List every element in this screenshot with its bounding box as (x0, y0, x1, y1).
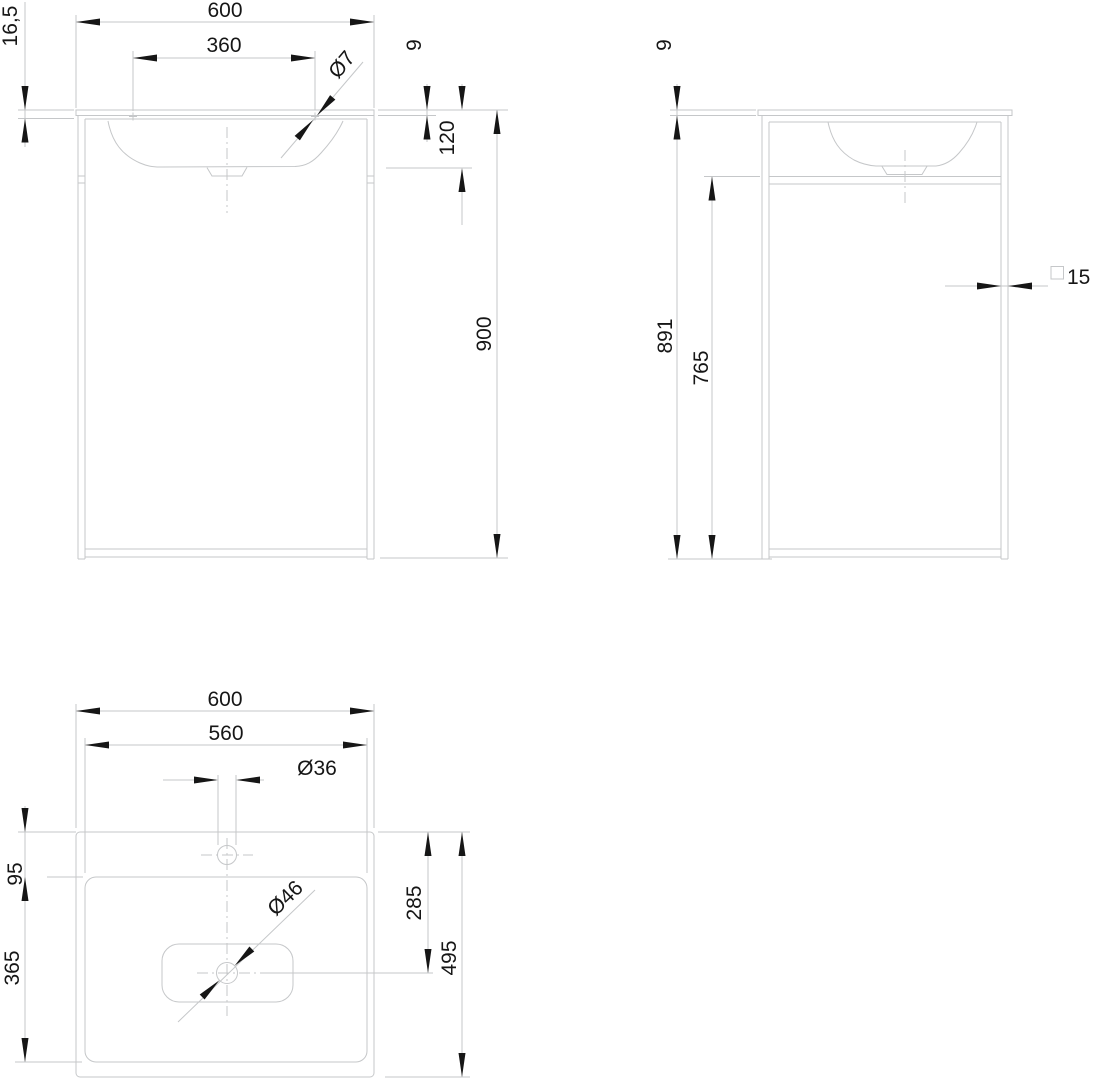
side-countertop (758, 110, 1012, 116)
plan-geometry (76, 832, 374, 1077)
plan-drain-dia-label: Ø46 (263, 876, 308, 920)
plan-cutout-width-label: 560 (208, 722, 243, 745)
front-height-label: 900 (473, 316, 496, 351)
plan-depth-label: 495 (438, 940, 461, 975)
side-legs (762, 116, 1008, 560)
side-basin-bowl (828, 122, 977, 166)
plan-back-offset-label: 95 (4, 862, 27, 885)
front-countertop (76, 110, 374, 116)
plan-dimensions: 600 560 Ø36 95 365 (1, 688, 470, 1077)
front-hole-dia-label: Ø7 (324, 47, 360, 83)
side-clearance-label: 765 (690, 350, 713, 385)
front-bottom-rail (85, 549, 367, 557)
side-geometry (758, 110, 1012, 559)
side-view: 9 891 765 15 (653, 39, 1090, 559)
front-dimensions: 600 360 Ø7 16,5 9 (0, 0, 508, 558)
plan-cutout-depth-label: 365 (1, 950, 24, 985)
front-basin-depth-label: 120 (436, 120, 459, 155)
side-dimensions: 9 891 765 15 (653, 39, 1090, 559)
front-side-rail-marks (78, 176, 374, 183)
plan-faucet-hole-dia-label: Ø36 (297, 757, 337, 780)
side-bottom-rail (769, 549, 1001, 557)
plan-width-label: 600 (207, 688, 242, 711)
drawing-canvas: 600 360 Ø7 16,5 9 (0, 0, 1098, 1080)
technical-drawing: 600 360 Ø7 16,5 9 (0, 0, 1098, 1080)
side-tube-size-label: 15 (1067, 266, 1090, 289)
plan-countertop-outline (76, 832, 374, 1077)
front-geometry (76, 110, 374, 559)
front-legs (78, 116, 374, 560)
front-view: 600 360 Ø7 16,5 9 (0, 0, 508, 559)
front-top-total-label: 16,5 (0, 6, 22, 47)
plan-basin-cutout (85, 877, 367, 1062)
side-rail (769, 177, 1001, 185)
side-top-thickness-label: 9 (653, 39, 676, 51)
side-height-below-top-label: 891 (654, 318, 677, 353)
front-top-thickness-label: 9 (403, 39, 426, 51)
plan-view: 600 560 Ø36 95 365 (1, 688, 470, 1077)
plan-drain-offset-label: 285 (403, 885, 426, 920)
front-hole-spacing-label: 360 (206, 34, 241, 57)
front-width-label: 600 (207, 0, 242, 22)
square-tube-symbol-icon (1051, 267, 1064, 280)
